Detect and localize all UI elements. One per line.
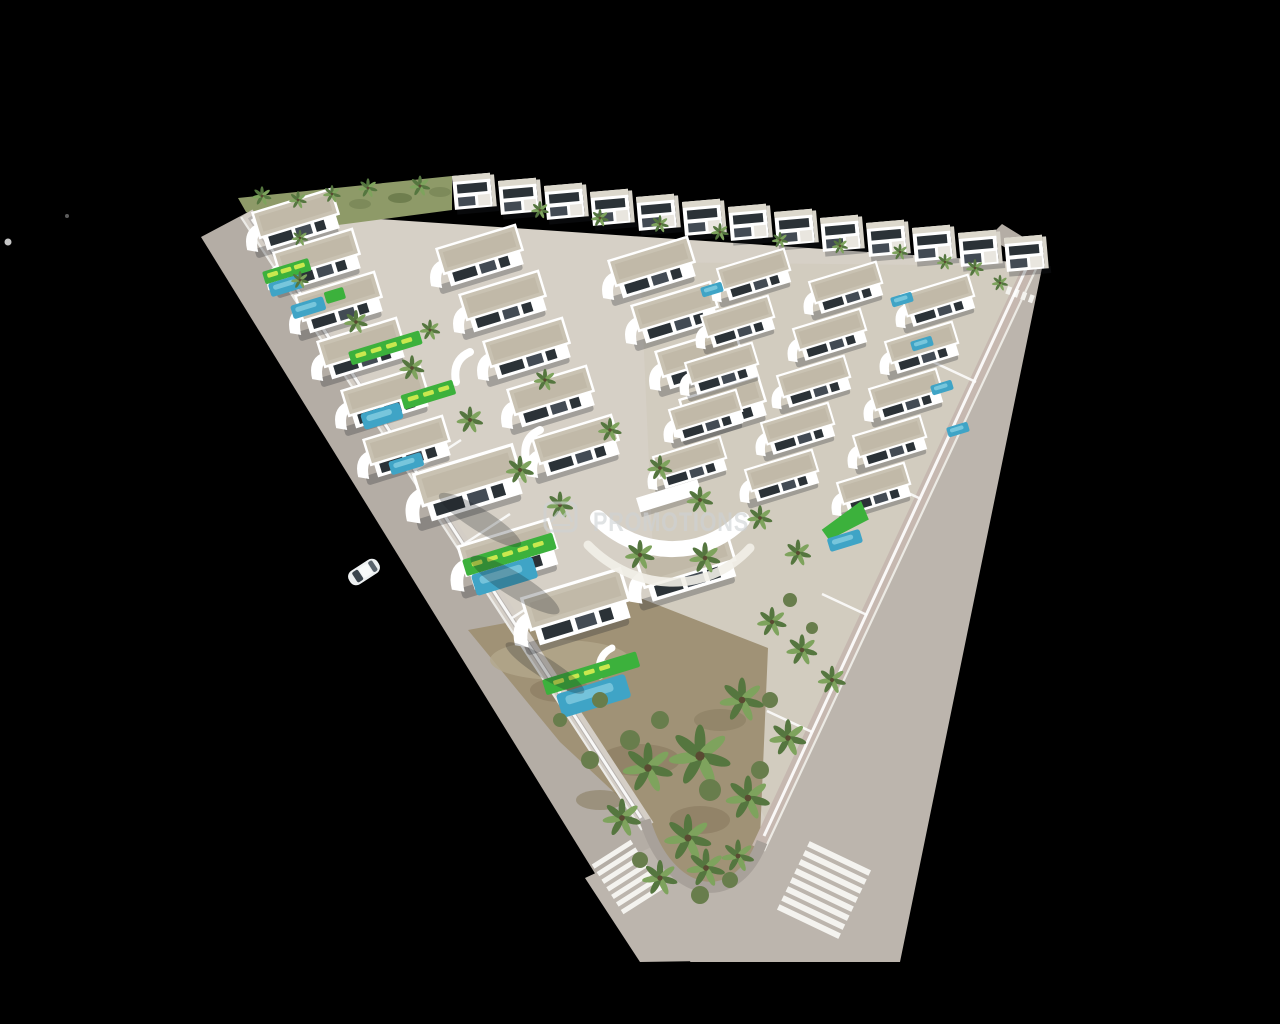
bird (5, 239, 12, 246)
watermark-text: PROMOTIONS (593, 507, 749, 537)
development-render: PROMOTIONS (0, 0, 1280, 1024)
bird (65, 214, 69, 218)
